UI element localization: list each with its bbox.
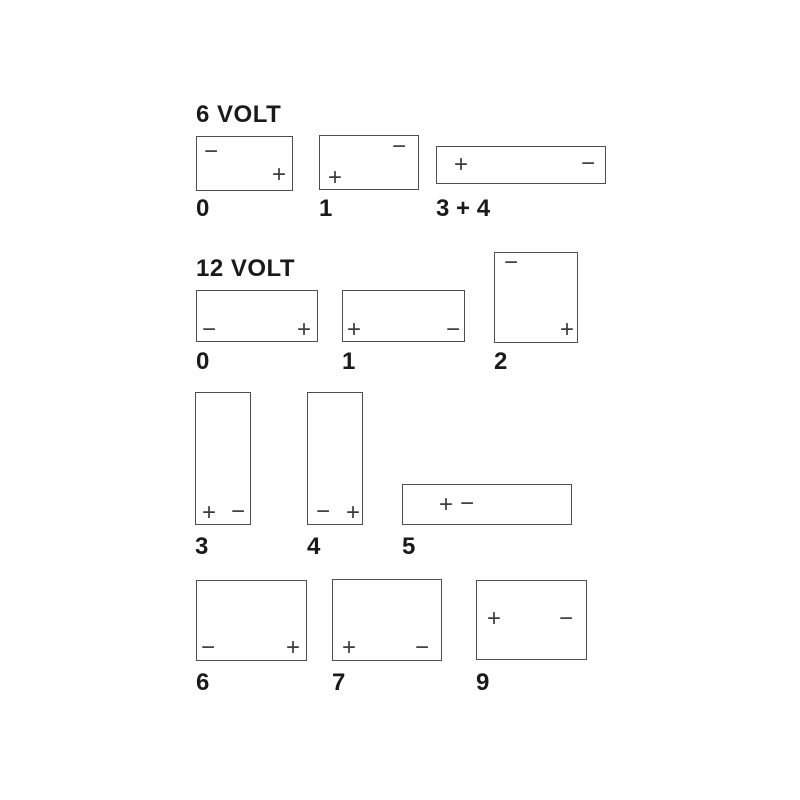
battery-box-6-volt-3-4: +− bbox=[436, 146, 606, 184]
plus-terminal-icon: + bbox=[328, 166, 342, 190]
battery-terminal-layout-diagram: 6 VOLT−+0−+1+−3 + 412 VOLT−+0+−1−+2+−3−+… bbox=[0, 0, 800, 800]
minus-terminal-icon: − bbox=[201, 636, 215, 660]
minus-terminal-icon: − bbox=[559, 607, 573, 631]
plus-terminal-icon: + bbox=[454, 153, 468, 177]
battery-label-12-volt-6: 6 bbox=[196, 670, 209, 696]
battery-label-12-volt-2: 2 bbox=[494, 349, 507, 375]
battery-box-12-volt-2: −+ bbox=[494, 252, 578, 343]
battery-box-12-volt-0: −+ bbox=[196, 290, 318, 342]
battery-box-6-volt-1: −+ bbox=[319, 135, 419, 190]
plus-terminal-icon: + bbox=[272, 163, 286, 187]
battery-label-12-volt-1: 1 bbox=[342, 349, 355, 375]
minus-terminal-icon: − bbox=[231, 500, 245, 524]
battery-label-6-volt-3-4: 3 + 4 bbox=[436, 196, 490, 222]
battery-label-6-volt-1: 1 bbox=[319, 196, 332, 222]
minus-terminal-icon: − bbox=[202, 318, 216, 342]
plus-terminal-icon: + bbox=[347, 318, 361, 342]
plus-terminal-icon: + bbox=[286, 636, 300, 660]
section-title-6-volt: 6 VOLT bbox=[196, 102, 281, 128]
battery-label-12-volt-4: 4 bbox=[307, 534, 320, 560]
section-title-12-volt: 12 VOLT bbox=[196, 256, 295, 282]
minus-terminal-icon: − bbox=[504, 251, 518, 275]
plus-terminal-icon: + bbox=[560, 318, 574, 342]
minus-terminal-icon: − bbox=[392, 135, 406, 159]
plus-terminal-icon: + bbox=[346, 501, 360, 525]
minus-terminal-icon: − bbox=[460, 492, 474, 516]
battery-label-12-volt-9: 9 bbox=[476, 670, 489, 696]
plus-terminal-icon: + bbox=[297, 318, 311, 342]
minus-terminal-icon: − bbox=[446, 318, 460, 342]
battery-box-12-volt-4: −+ bbox=[307, 392, 363, 525]
minus-terminal-icon: − bbox=[581, 152, 595, 176]
battery-box-12-volt-1: +− bbox=[342, 290, 465, 342]
battery-box-12-volt-5: +− bbox=[402, 484, 572, 525]
plus-terminal-icon: + bbox=[439, 493, 453, 517]
battery-label-6-volt-0: 0 bbox=[196, 196, 209, 222]
battery-label-12-volt-3: 3 bbox=[195, 534, 208, 560]
minus-terminal-icon: − bbox=[316, 500, 330, 524]
battery-box-12-volt-3: +− bbox=[195, 392, 251, 525]
battery-box-12-volt-9: +− bbox=[476, 580, 587, 660]
battery-label-12-volt-7: 7 bbox=[332, 670, 345, 696]
plus-terminal-icon: + bbox=[342, 636, 356, 660]
plus-terminal-icon: + bbox=[202, 501, 216, 525]
minus-terminal-icon: − bbox=[204, 140, 218, 164]
battery-box-12-volt-6: −+ bbox=[196, 580, 307, 661]
battery-box-12-volt-7: +− bbox=[332, 579, 442, 661]
minus-terminal-icon: − bbox=[415, 636, 429, 660]
plus-terminal-icon: + bbox=[487, 607, 501, 631]
battery-label-12-volt-0: 0 bbox=[196, 349, 209, 375]
battery-box-6-volt-0: −+ bbox=[196, 136, 293, 191]
battery-label-12-volt-5: 5 bbox=[402, 534, 415, 560]
